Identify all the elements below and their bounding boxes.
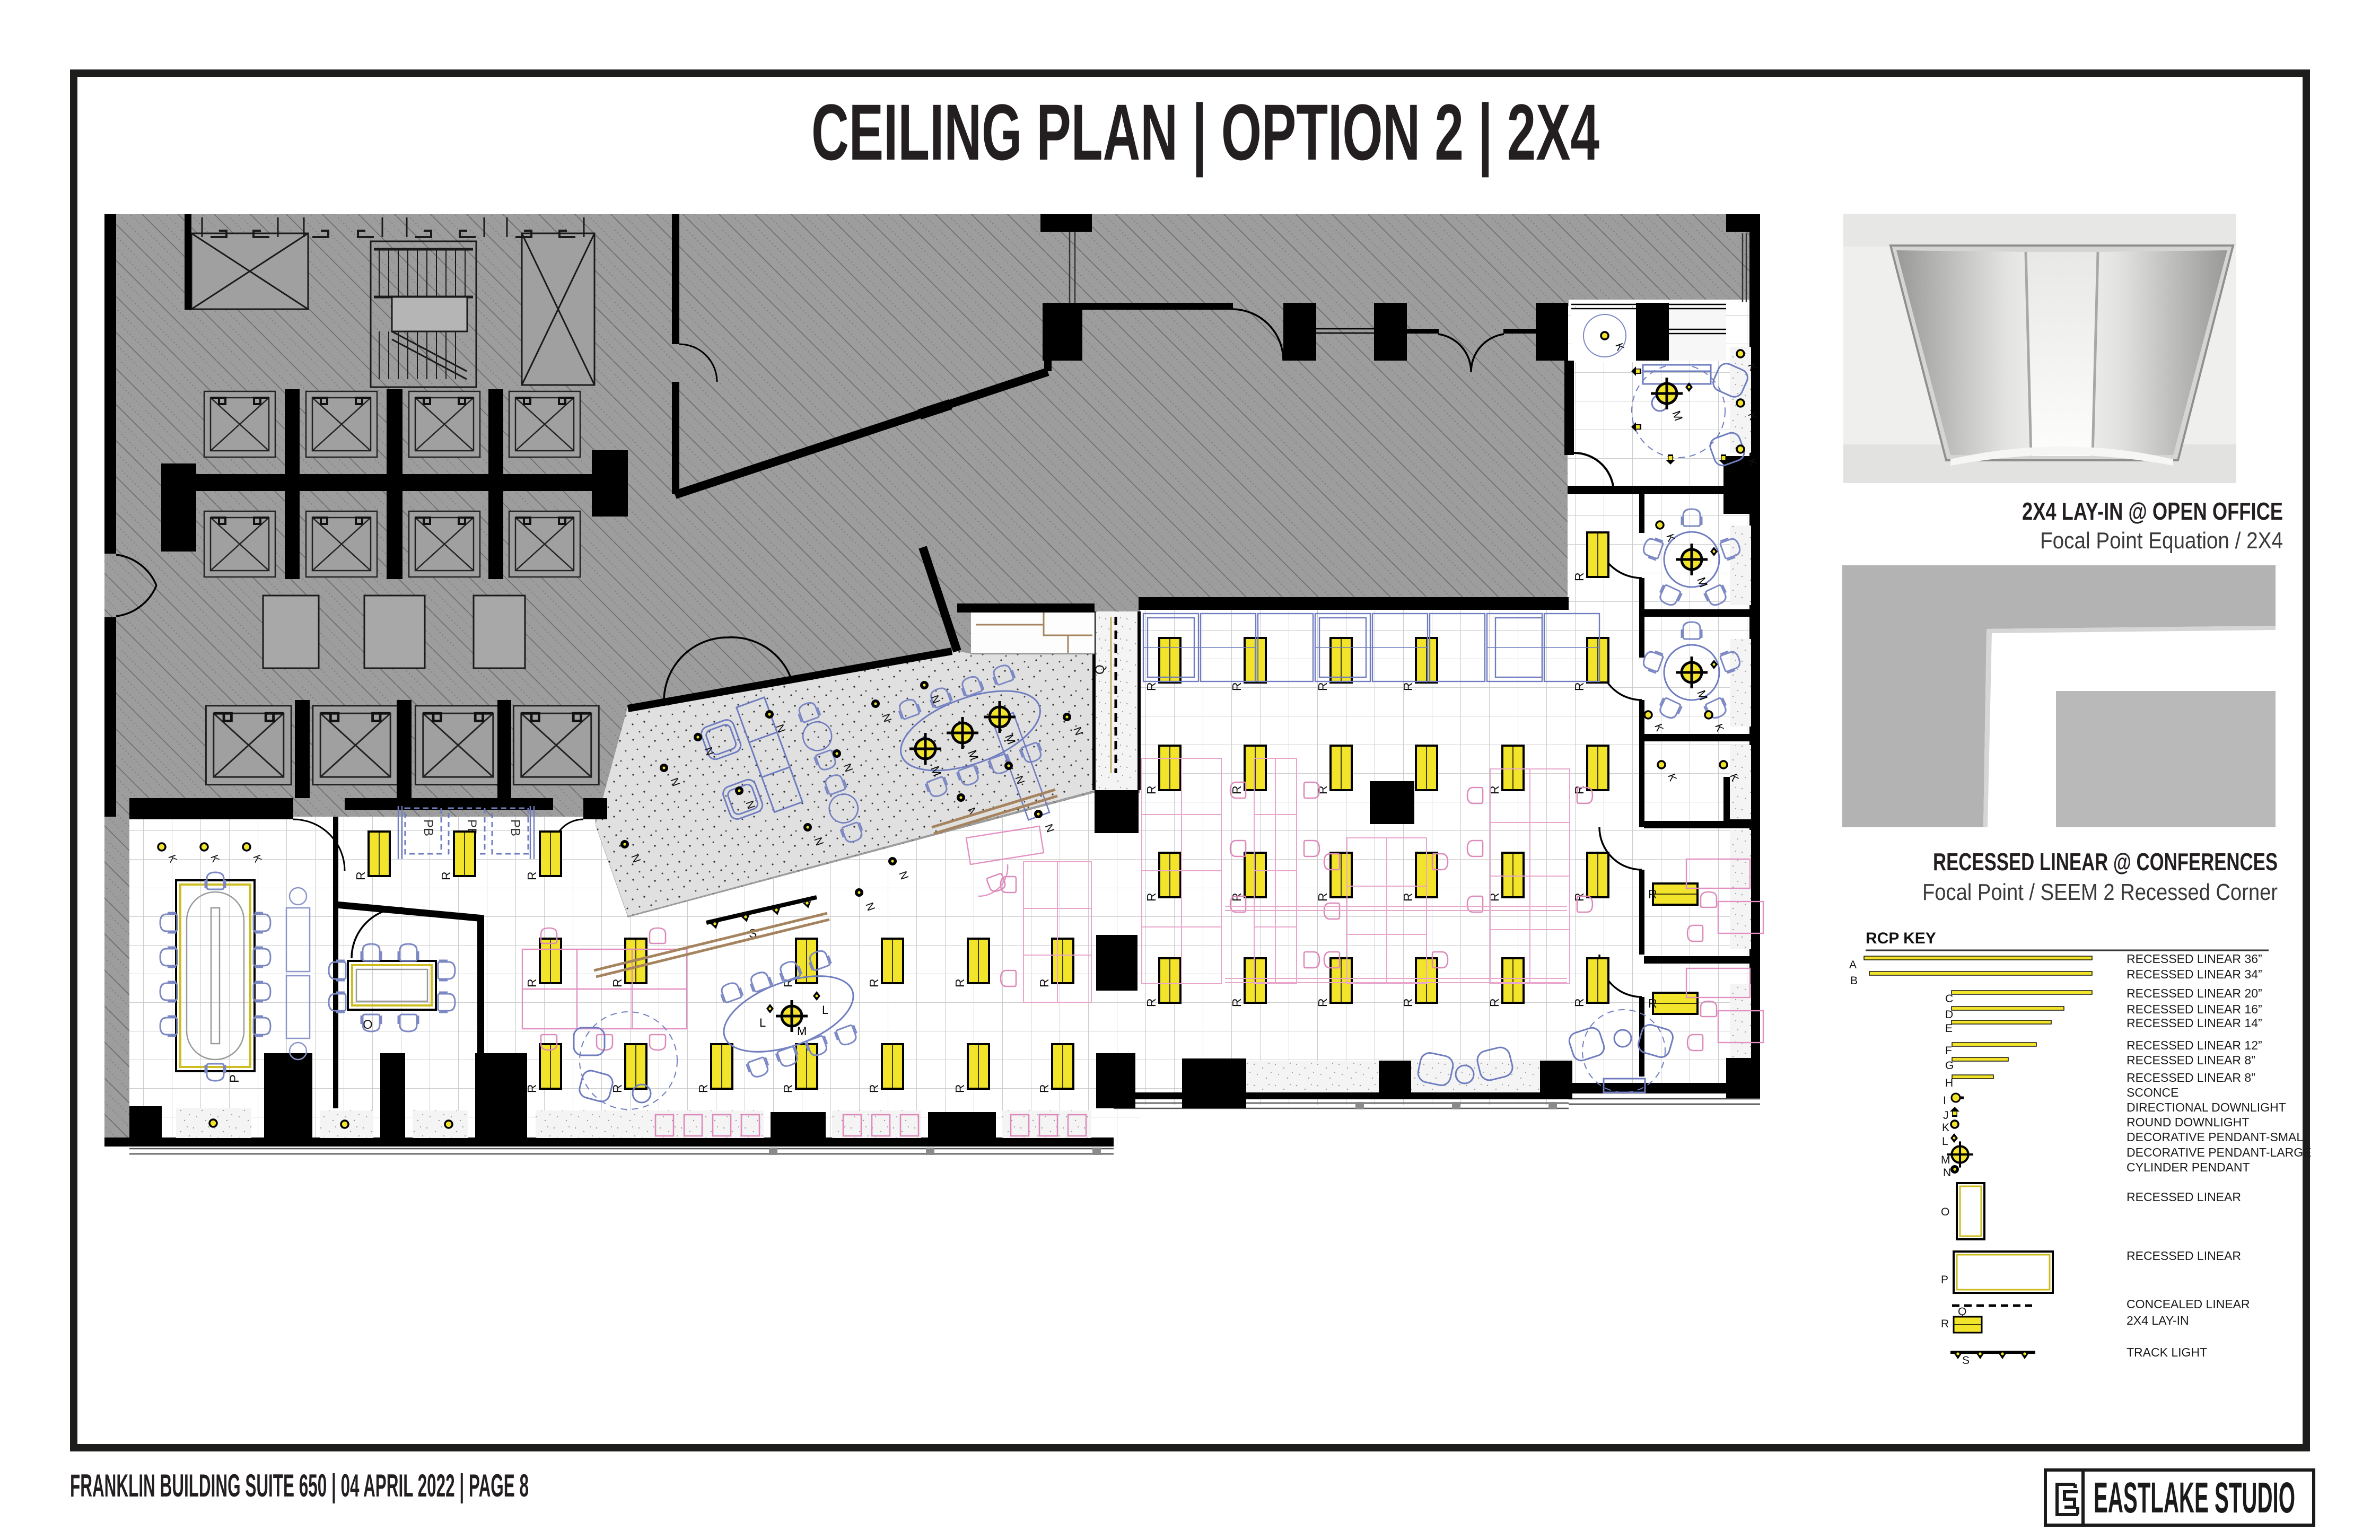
svg-text:C: C [1945,993,1953,1005]
svg-text:R: R [1316,998,1329,1007]
svg-text:S: S [1962,1354,1970,1367]
svg-text:L: L [1942,1135,1948,1148]
svg-text:R: R [610,978,624,987]
svg-text:RECESSED LINEAR 12”: RECESSED LINEAR 12” [2127,1038,2262,1052]
svg-text:R: R [1144,998,1158,1007]
svg-text:R: R [781,1084,795,1093]
svg-text:L: L [759,1016,766,1029]
svg-text:RECESSED LINEAR 34”: RECESSED LINEAR 34” [2127,967,2262,981]
svg-text:DIRECTIONAL DOWNLIGHT: DIRECTIONAL DOWNLIGHT [2127,1100,2286,1114]
svg-text:2X4 LAY-IN @ OPEN OFFICE: 2X4 LAY-IN @ OPEN OFFICE [2022,497,2283,525]
svg-text:DECORATIVE PENDANT-SMALL: DECORATIVE PENDANT-SMALL [2127,1130,2310,1144]
svg-text:J: J [1943,1109,1949,1122]
svg-text:RECESSED LINEAR 20”: RECESSED LINEAR 20” [2127,986,2262,1000]
svg-text:R: R [1144,682,1158,691]
svg-text:TRACK LIGHT: TRACK LIGHT [2127,1345,2207,1359]
svg-text:R: R [1144,892,1158,902]
svg-text:R: R [1487,998,1501,1007]
svg-text:R: R [1941,1318,1949,1330]
svg-text:CONCEALED LINEAR: CONCEALED LINEAR [2127,1297,2250,1311]
svg-text:P: P [227,1074,242,1083]
svg-text:R: R [1401,998,1415,1007]
svg-text:CEILING PLAN | OPTION 2 | 2X4: CEILING PLAN | OPTION 2 | 2X4 [811,87,1599,178]
svg-text:R: R [1037,1084,1051,1093]
svg-text:RCP KEY: RCP KEY [1866,930,1936,947]
svg-text:R: R [1230,785,1244,794]
svg-text:Q: Q [1093,664,1107,675]
svg-text:A: A [1849,959,1857,971]
svg-text:R: R [525,1084,539,1093]
svg-text:R: R [867,978,881,987]
svg-text:R: R [1037,978,1051,987]
svg-text:R: R [1316,892,1329,902]
svg-text:K: K [1942,1122,1949,1134]
svg-text:RECESSED LINEAR: RECESSED LINEAR [2127,1190,2241,1204]
svg-text:R: R [1648,996,1657,1010]
svg-text:M: M [797,1025,807,1038]
svg-text:Focal Point / SEEM 2 Recessed: Focal Point / SEEM 2 Recessed Corner [1922,879,2278,905]
svg-text:RECESSED LINEAR 36”: RECESSED LINEAR 36” [2127,952,2262,966]
svg-text:Focal Point Equation / 2X4: Focal Point Equation / 2X4 [2040,528,2283,554]
svg-text:R: R [696,1084,710,1093]
svg-text:N: N [1943,1167,1951,1179]
svg-text:RECESSED LINEAR: RECESSED LINEAR [2127,1249,2241,1263]
svg-text:R: R [1572,998,1586,1007]
svg-text:R: R [867,1084,881,1093]
svg-text:O: O [1941,1206,1949,1218]
svg-text:R: R [1230,682,1244,691]
svg-text:DECORATIVE PENDANT-LARGE: DECORATIVE PENDANT-LARGE [2127,1145,2311,1159]
svg-text:H: H [1945,1077,1953,1089]
svg-text:R: R [1230,998,1244,1007]
svg-text:2X4 LAY-IN: 2X4 LAY-IN [2127,1314,2189,1327]
svg-text:RECESSED LINEAR 8”: RECESSED LINEAR 8” [2127,1053,2255,1067]
svg-text:R: R [1487,785,1501,794]
svg-text:R: R [439,871,453,880]
svg-text:CYLINDER PENDANT: CYLINDER PENDANT [2127,1160,2250,1174]
svg-text:R: R [953,1084,967,1093]
svg-text:R: R [1401,892,1415,902]
svg-text:EASTLAKE STUDIO: EASTLAKE STUDIO [2094,1474,2295,1522]
svg-text:Q: Q [1958,1306,1966,1318]
svg-text:RECESSED LINEAR @ CONFERENCES: RECESSED LINEAR @ CONFERENCES [1933,848,2278,876]
svg-text:B: B [1850,975,1858,987]
svg-text:R: R [1572,682,1586,691]
svg-text:M: M [1941,1154,1950,1166]
svg-text:R: R [1316,785,1329,794]
svg-text:SCONCE: SCONCE [2127,1086,2178,1099]
svg-text:RECESSED LINEAR 14”: RECESSED LINEAR 14” [2127,1016,2262,1030]
svg-text:R: R [525,978,539,987]
svg-text:ROUND DOWNLIGHT: ROUND DOWNLIGHT [2127,1115,2249,1129]
svg-text:FRANKLIN BUILDING SUITE 650 |: FRANKLIN BUILDING SUITE 650 | 04 APRIL 2… [70,1468,529,1504]
svg-text:L: L [822,1003,828,1017]
svg-text:E: E [1945,1022,1953,1035]
svg-text:R: R [525,871,539,880]
svg-text:I: I [1943,1095,1946,1107]
svg-text:PB: PB [421,819,435,836]
svg-text:R: R [354,871,367,880]
svg-text:G: G [1945,1060,1954,1072]
svg-text:R: R [1316,682,1329,691]
svg-text:P: P [1941,1274,1948,1286]
svg-text:R: R [1648,887,1657,901]
svg-text:R: R [1144,785,1158,794]
svg-text:R: R [1401,682,1415,691]
svg-text:D: D [1945,1009,1953,1021]
svg-text:R: R [953,978,967,987]
svg-text:R: R [1487,892,1501,902]
svg-text:RECESSED LINEAR 16”: RECESSED LINEAR 16” [2127,1002,2262,1016]
svg-text:RECESSED LINEAR 8”: RECESSED LINEAR 8” [2127,1071,2255,1084]
svg-text:R: R [1572,892,1586,902]
svg-text:PB: PB [508,819,522,836]
svg-text:R: R [1572,572,1586,581]
svg-text:F: F [1945,1045,1952,1057]
